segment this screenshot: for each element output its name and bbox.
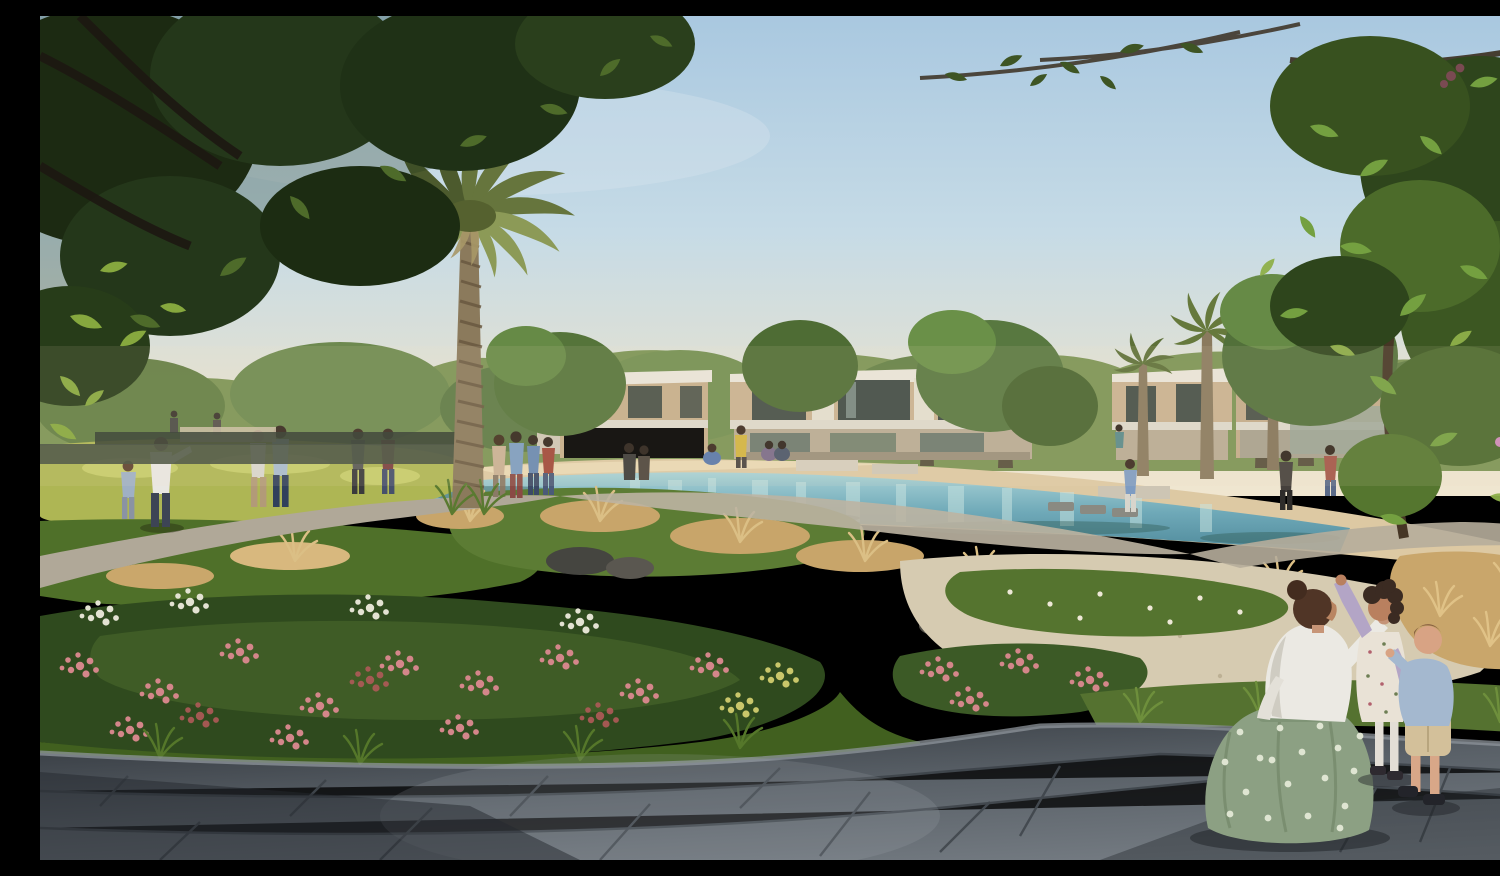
park-render-image: Photorealistic rendering of a landscaped… — [40, 16, 1500, 860]
horizon-haze — [40, 346, 1500, 486]
flower-beds-foreground — [40, 588, 920, 776]
park-render-canvas — [40, 16, 1500, 860]
